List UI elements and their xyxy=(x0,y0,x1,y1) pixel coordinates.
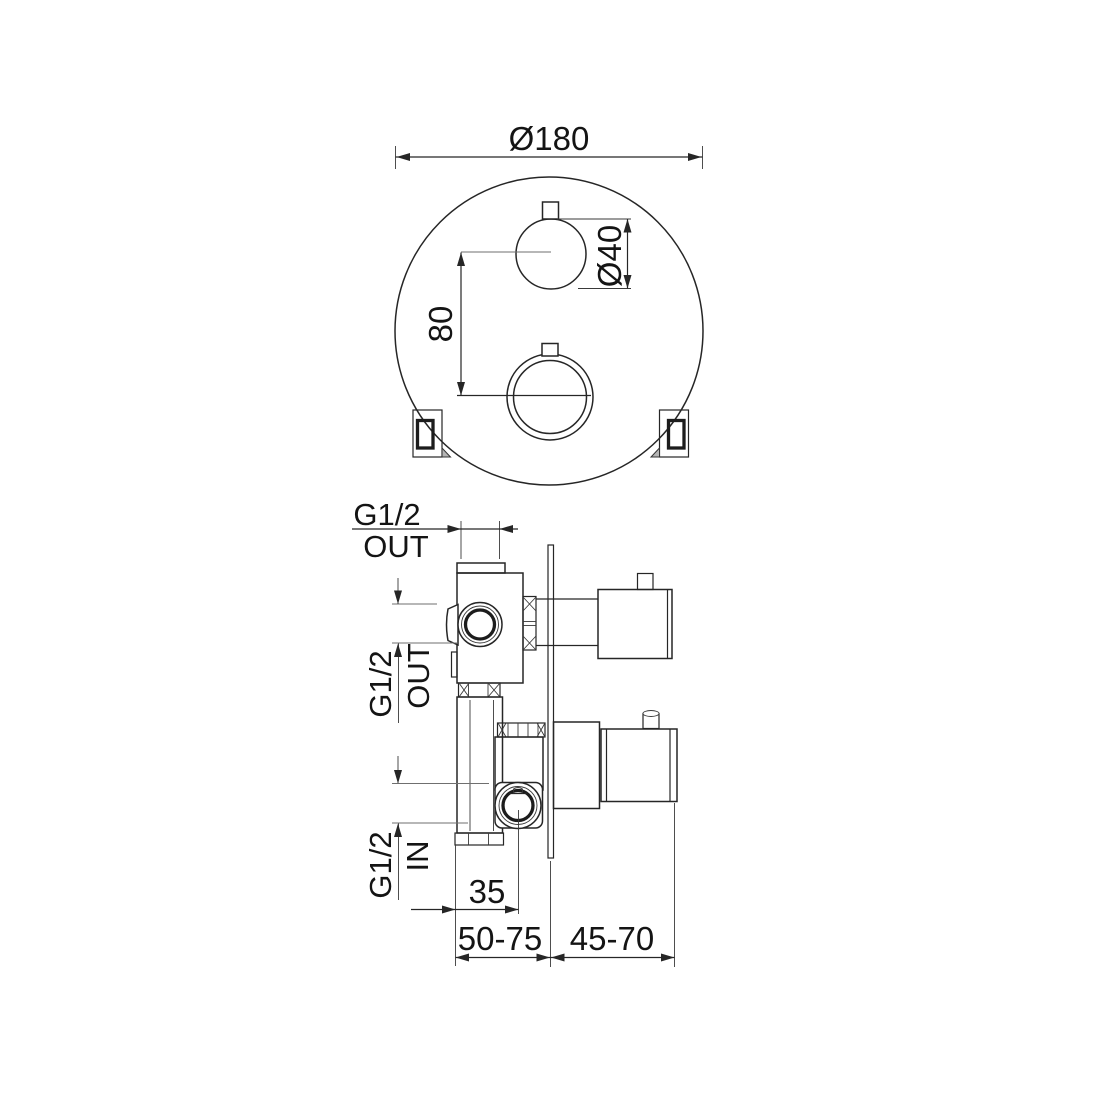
mounting-bracket-left xyxy=(413,410,451,457)
coupling-nut xyxy=(459,683,501,697)
faceplate-diameter-label: Ø180 xyxy=(509,120,590,157)
thermostat-knob-top-view xyxy=(516,202,586,289)
inlet-port xyxy=(495,783,541,829)
top-port-thread-label: G1/2 xyxy=(353,497,420,532)
upper-handle xyxy=(536,574,672,659)
mounting-bracket-right xyxy=(651,410,689,457)
dim-knob-diameter: Ø40 xyxy=(557,219,632,289)
hex-fitting xyxy=(523,597,536,651)
wall-plate xyxy=(548,545,554,858)
top-port-direction-label: OUT xyxy=(363,529,429,564)
knob-index-tab xyxy=(543,202,559,219)
inlet-offset-label: 35 xyxy=(469,873,506,910)
side-port-thread-label: G1/2 xyxy=(363,650,398,717)
upper-handle-button xyxy=(638,574,654,590)
body-side-lug xyxy=(452,652,458,677)
side-outlet-port xyxy=(458,603,502,647)
dim-knob-spacing: 80 xyxy=(422,252,591,396)
top-outlet-port xyxy=(457,563,505,573)
lower-handle xyxy=(554,711,678,809)
dim-top-outlet: G1/2 OUT xyxy=(352,497,518,564)
inlet-thread-label: G1/2 xyxy=(363,831,398,898)
knob-spacing-label: 80 xyxy=(422,306,459,343)
depth-rear-label: 45-70 xyxy=(570,920,654,957)
volume-knob-top-view xyxy=(507,344,593,441)
valve-body xyxy=(447,563,546,845)
knob-index-tab xyxy=(542,344,558,357)
dim-side-outlet: G1/2 OUT xyxy=(363,578,457,723)
front-section-view: G1/2 OUT G1/2 OUT G1/2 IN xyxy=(352,497,677,967)
side-port-direction-label: OUT xyxy=(401,643,436,709)
side-port-stub xyxy=(447,605,459,646)
knob-diameter-label: Ø40 xyxy=(591,225,628,287)
dim-faceplate-diameter: Ø180 xyxy=(396,120,703,169)
inlet-direction-label: IN xyxy=(400,841,435,872)
top-view: Ø180 Ø40 80 xyxy=(395,120,703,485)
depth-front-label: 50-75 xyxy=(458,920,542,957)
mixer-technical-drawing: Ø180 Ø40 80 xyxy=(0,0,1100,1100)
technical-drawing-page: Ø180 Ø40 80 xyxy=(0,0,1100,1100)
